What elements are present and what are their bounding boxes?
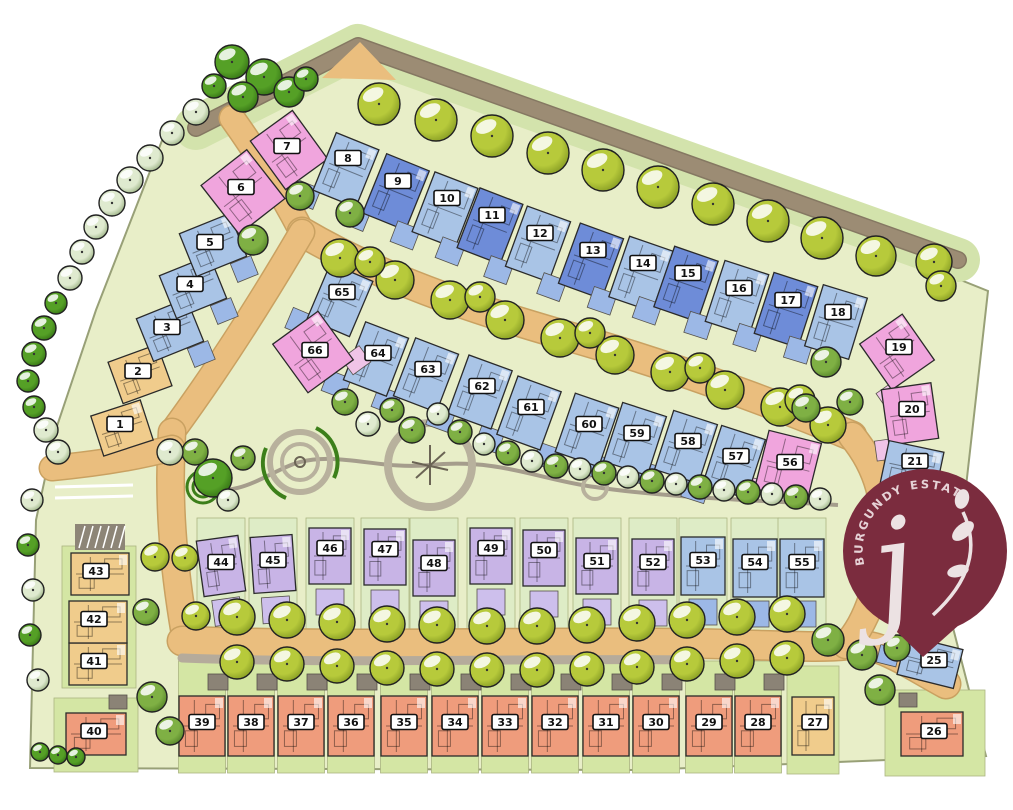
tree-lime xyxy=(801,217,843,259)
tree-lime xyxy=(465,282,495,312)
svg-text:18: 18 xyxy=(830,306,845,319)
lot-55-number: 55 xyxy=(789,555,815,570)
driveway xyxy=(764,674,784,690)
lot-21-number: 21 xyxy=(902,454,928,469)
lot-54-number: 54 xyxy=(742,555,768,570)
tree-sage xyxy=(617,466,639,488)
tree-lime xyxy=(926,271,956,301)
tree-lime xyxy=(651,353,689,391)
tree-lime xyxy=(520,653,554,687)
tree-lime xyxy=(669,602,705,638)
tree-dark xyxy=(49,746,67,764)
tree-sage xyxy=(473,433,495,455)
tree-lime xyxy=(270,647,304,681)
lot-42-number: 42 xyxy=(81,612,107,627)
lot-43-number: 43 xyxy=(83,564,109,579)
tree-sage xyxy=(761,483,783,505)
svg-text:50: 50 xyxy=(536,544,552,557)
lot-15-number: 15 xyxy=(675,266,701,281)
tree-lime xyxy=(527,132,569,174)
svg-text:40: 40 xyxy=(86,725,102,738)
svg-text:43: 43 xyxy=(88,565,103,578)
tree-dark xyxy=(202,74,226,98)
driveway xyxy=(257,674,277,690)
tree-sage xyxy=(22,579,44,601)
lot-64-number: 64 xyxy=(365,346,391,361)
tree-sage xyxy=(217,489,239,511)
svg-text:9: 9 xyxy=(394,175,402,188)
tree-sage xyxy=(665,473,687,495)
tree-dark xyxy=(22,342,46,366)
lot-59-number: 59 xyxy=(624,426,650,441)
lot-2-number: 2 xyxy=(125,364,151,379)
svg-text:35: 35 xyxy=(396,716,411,729)
svg-text:44: 44 xyxy=(213,556,229,569)
tree-green xyxy=(812,624,844,656)
lot-16-number: 16 xyxy=(726,281,752,296)
tree-lime xyxy=(637,166,679,208)
tree-lime xyxy=(358,83,400,125)
tree-dark xyxy=(17,534,39,556)
tree-dark xyxy=(228,82,258,112)
svg-text:14: 14 xyxy=(635,257,651,270)
lot-31-number: 31 xyxy=(593,715,619,730)
svg-text:25: 25 xyxy=(926,654,941,667)
tree-lime xyxy=(856,236,896,276)
svg-text:16: 16 xyxy=(731,282,747,295)
svg-text:4: 4 xyxy=(186,278,194,291)
tree-lime xyxy=(415,99,457,141)
tree-green xyxy=(336,199,364,227)
lot-44-number: 44 xyxy=(208,555,234,570)
tree-lime xyxy=(770,641,804,675)
tree-sage xyxy=(117,167,143,193)
lot-8-number: 8 xyxy=(335,151,361,166)
svg-text:39: 39 xyxy=(194,716,209,729)
tree-lime xyxy=(720,644,754,678)
tree-dark xyxy=(215,45,249,79)
tree-lime xyxy=(619,605,655,641)
tree-sage xyxy=(356,412,380,436)
tree-green xyxy=(736,480,760,504)
svg-text:33: 33 xyxy=(497,716,512,729)
tree-lime xyxy=(519,608,555,644)
lot-63-number: 63 xyxy=(415,362,441,377)
tree-lime xyxy=(582,149,624,191)
tree-dark xyxy=(19,624,41,646)
tree-sage xyxy=(183,99,209,125)
svg-text:2: 2 xyxy=(134,365,142,378)
tree-lime xyxy=(575,318,605,348)
tree-lime xyxy=(419,607,455,643)
svg-text:58: 58 xyxy=(680,435,695,448)
lot-46-number: 46 xyxy=(317,541,343,556)
tree-green xyxy=(182,439,208,465)
tree-sage xyxy=(569,458,591,480)
lot-36-number: 36 xyxy=(338,715,364,730)
tree-green xyxy=(847,640,877,670)
lot-40-number: 40 xyxy=(81,724,107,739)
tree-lime xyxy=(172,545,198,571)
tree-lime xyxy=(319,604,355,640)
lot-19-number: 19 xyxy=(886,340,912,355)
tree-lime xyxy=(182,602,210,630)
lot-11-number: 11 xyxy=(479,208,505,223)
svg-text:53: 53 xyxy=(695,554,710,567)
tree-lime xyxy=(685,353,715,383)
tree-lime xyxy=(220,645,254,679)
lot-29-number: 29 xyxy=(696,715,722,730)
svg-text:12: 12 xyxy=(532,227,547,240)
lot-56-number: 56 xyxy=(777,455,803,470)
lot-53-number: 53 xyxy=(690,553,716,568)
tree-lime xyxy=(420,652,454,686)
svg-text:1: 1 xyxy=(116,418,124,431)
tree-sage xyxy=(137,145,163,171)
tree-lime xyxy=(320,649,354,683)
lot-18-number: 18 xyxy=(825,305,851,320)
tree-lime xyxy=(541,319,579,357)
tree-lime xyxy=(269,602,305,638)
site-plan: 1234567891011121314151617181920212526272… xyxy=(0,0,1013,810)
tree-lime xyxy=(355,247,385,277)
lot-39-number: 39 xyxy=(189,715,215,730)
tree-lime xyxy=(569,607,605,643)
lot-49-number: 49 xyxy=(478,541,504,556)
svg-text:45: 45 xyxy=(265,554,280,567)
svg-text:38: 38 xyxy=(243,716,258,729)
tree-green xyxy=(496,441,520,465)
lot-65-number: 65 xyxy=(329,285,355,300)
svg-text:36: 36 xyxy=(343,716,359,729)
svg-text:66: 66 xyxy=(307,344,323,357)
tree-green xyxy=(688,475,712,499)
svg-text:41: 41 xyxy=(86,655,101,668)
tree-lime xyxy=(692,183,734,225)
svg-text:62: 62 xyxy=(474,380,489,393)
tree-green xyxy=(231,446,255,470)
tree-dark xyxy=(17,370,39,392)
lot-1-number: 1 xyxy=(107,417,133,432)
tree-lime xyxy=(570,652,604,686)
tree-lime xyxy=(141,543,169,571)
tree-sage xyxy=(27,669,49,691)
svg-text:65: 65 xyxy=(334,286,349,299)
tree-sage xyxy=(427,403,449,425)
tree-sage xyxy=(58,266,82,290)
lot-47-number: 47 xyxy=(372,542,398,557)
tree-sage xyxy=(809,488,831,510)
lot-37-number: 37 xyxy=(288,715,314,730)
svg-text:42: 42 xyxy=(86,613,101,626)
driveway xyxy=(899,693,917,707)
svg-text:6: 6 xyxy=(237,181,245,194)
lot-3-number: 3 xyxy=(154,320,180,335)
svg-text:7: 7 xyxy=(283,140,291,153)
svg-text:17: 17 xyxy=(780,294,795,307)
lot-50-number: 50 xyxy=(531,543,557,558)
tree-lime xyxy=(670,647,704,681)
tree-lime xyxy=(369,606,405,642)
tree-sage xyxy=(157,439,183,465)
tree-dark xyxy=(31,743,49,761)
lot-35-number: 35 xyxy=(391,715,417,730)
lot-27-number: 27 xyxy=(802,715,828,730)
lot-51-number: 51 xyxy=(584,554,610,569)
svg-text:30: 30 xyxy=(648,716,664,729)
svg-text:55: 55 xyxy=(794,556,809,569)
svg-text:11: 11 xyxy=(484,209,499,222)
tree-lime xyxy=(471,115,513,157)
tree-green xyxy=(448,420,472,444)
tree-sage xyxy=(521,450,543,472)
tree-lime xyxy=(431,281,469,319)
tree-green xyxy=(865,675,895,705)
lot-28-number: 28 xyxy=(745,715,771,730)
tree-green xyxy=(640,469,664,493)
tree-sage xyxy=(70,240,94,264)
tree-green xyxy=(592,461,616,485)
lot-38-number: 38 xyxy=(238,715,264,730)
lot-52-number: 52 xyxy=(640,555,666,570)
tree-lime xyxy=(469,608,505,644)
lot-13-number: 13 xyxy=(580,243,606,258)
svg-text:59: 59 xyxy=(629,427,644,440)
lot-61-number: 61 xyxy=(518,400,544,415)
svg-text:63: 63 xyxy=(420,363,435,376)
lot-41-number: 41 xyxy=(81,654,107,669)
tree-lime xyxy=(719,599,755,635)
tree-green xyxy=(811,347,841,377)
svg-text:46: 46 xyxy=(322,542,338,555)
tree-green xyxy=(332,389,358,415)
lot-66-number: 66 xyxy=(302,343,328,358)
svg-text:48: 48 xyxy=(426,557,441,570)
svg-text:60: 60 xyxy=(581,418,597,431)
svg-text:31: 31 xyxy=(598,716,613,729)
svg-text:3: 3 xyxy=(163,321,171,334)
tree-green xyxy=(837,389,863,415)
tree-lime xyxy=(769,596,805,632)
svg-text:28: 28 xyxy=(750,716,765,729)
svg-text:34: 34 xyxy=(447,716,463,729)
lot-33-number: 33 xyxy=(492,715,518,730)
lot-58-number: 58 xyxy=(675,434,701,449)
lot-34-number: 34 xyxy=(442,715,468,730)
lot-4-number: 4 xyxy=(177,277,203,292)
tree-lime xyxy=(219,599,255,635)
tree-green xyxy=(544,454,568,478)
tree-dark xyxy=(45,292,67,314)
tree-green xyxy=(133,599,159,625)
tree-lime xyxy=(370,651,404,685)
tree-green xyxy=(137,682,167,712)
tree-green xyxy=(380,398,404,422)
tree-dark xyxy=(294,67,318,91)
tree-sage xyxy=(713,479,735,501)
svg-text:19: 19 xyxy=(891,341,906,354)
tree-sage xyxy=(21,489,43,511)
svg-text:26: 26 xyxy=(926,725,942,738)
site-plan-map: 1234567891011121314151617181920212526272… xyxy=(0,0,1013,810)
lot-48-number: 48 xyxy=(421,556,447,571)
tree-sage xyxy=(99,190,125,216)
tree-sage xyxy=(160,121,184,145)
tree-dark xyxy=(32,316,56,340)
lot-62-number: 62 xyxy=(469,379,495,394)
lot-26-number: 26 xyxy=(921,724,947,739)
svg-text:8: 8 xyxy=(344,152,352,165)
svg-text:56: 56 xyxy=(782,456,798,469)
svg-text:49: 49 xyxy=(483,542,498,555)
lot-6-number: 6 xyxy=(228,180,254,195)
tree-sage xyxy=(34,418,58,442)
lot-10-number: 10 xyxy=(434,191,460,206)
svg-text:15: 15 xyxy=(680,267,695,280)
svg-text:47: 47 xyxy=(377,543,392,556)
lot-5-number: 5 xyxy=(197,235,223,250)
lot-20-number: 20 xyxy=(899,402,925,417)
lot-45-number: 45 xyxy=(260,553,286,568)
lot-57-number: 57 xyxy=(723,449,749,464)
tree-green xyxy=(792,394,820,422)
lot-60-number: 60 xyxy=(576,417,602,432)
svg-text:37: 37 xyxy=(293,716,308,729)
tree-green xyxy=(399,417,425,443)
lot-7-number: 7 xyxy=(274,139,300,154)
svg-text:27: 27 xyxy=(807,716,822,729)
tree-green xyxy=(238,225,268,255)
tree-dark xyxy=(67,748,85,766)
lot-9-number: 9 xyxy=(385,174,411,189)
tree-green xyxy=(156,717,184,745)
svg-text:5: 5 xyxy=(206,236,214,249)
tree-lime xyxy=(470,653,504,687)
tree-sage xyxy=(46,440,70,464)
svg-text:61: 61 xyxy=(523,401,538,414)
svg-text:54: 54 xyxy=(747,556,763,569)
lot-30-number: 30 xyxy=(643,715,669,730)
svg-text:13: 13 xyxy=(585,244,600,257)
lot-14-number: 14 xyxy=(630,256,656,271)
lot-12-number: 12 xyxy=(527,226,553,241)
lot-32-number: 32 xyxy=(542,715,568,730)
tree-lime xyxy=(620,650,654,684)
driveway xyxy=(208,674,228,690)
svg-text:20: 20 xyxy=(904,403,920,416)
tree-lime xyxy=(747,200,789,242)
svg-text:32: 32 xyxy=(547,716,562,729)
svg-text:57: 57 xyxy=(728,450,743,463)
tree-green xyxy=(286,182,314,210)
svg-text:64: 64 xyxy=(370,347,386,360)
tree-sage xyxy=(84,215,108,239)
svg-text:52: 52 xyxy=(645,556,660,569)
tree-dark xyxy=(23,396,45,418)
svg-text:51: 51 xyxy=(589,555,604,568)
svg-text:21: 21 xyxy=(907,455,922,468)
tree-lime xyxy=(321,239,359,277)
lot-17-number: 17 xyxy=(775,293,801,308)
driveway xyxy=(109,695,127,709)
tree-green xyxy=(784,485,808,509)
svg-text:29: 29 xyxy=(701,716,716,729)
svg-text:10: 10 xyxy=(439,192,455,205)
